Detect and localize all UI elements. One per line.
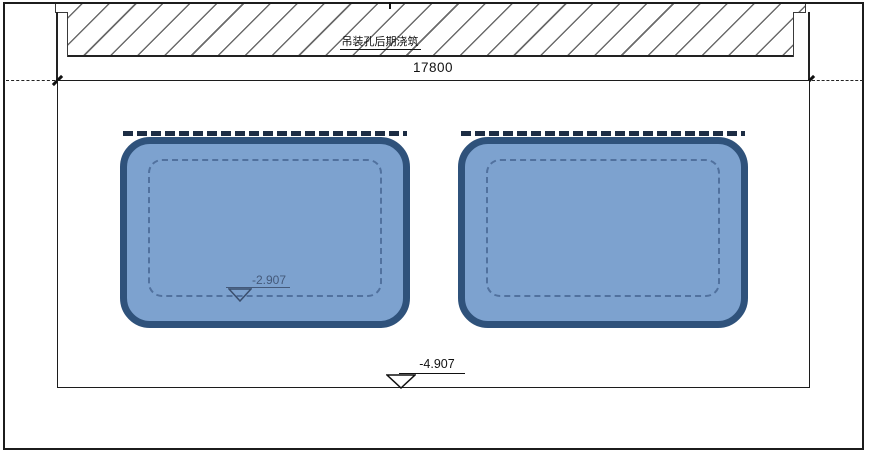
pool-right-inner-dashed-outline	[486, 159, 720, 297]
pool-left	[120, 137, 410, 328]
elevation-triangle-icon	[228, 288, 252, 302]
elevation-value-base: -4.907	[409, 357, 465, 371]
elevation-triangle-icon	[386, 374, 416, 389]
dimension-label: 17800	[373, 60, 493, 75]
pool-right	[458, 137, 748, 328]
elevation-value-pit: -2.907	[243, 273, 295, 287]
dimension-dashed-extension-right	[812, 80, 863, 81]
construction-note-text: 吊装孔后期浇筑	[340, 36, 421, 50]
dimension-dashed-extension-left	[6, 80, 55, 81]
slab-step-notch-right	[793, 12, 806, 57]
hatched-slab-band	[55, 4, 806, 57]
extension-line-right	[808, 12, 810, 82]
construction-note: 吊装孔后期浇筑	[295, 36, 465, 49]
extension-line-left	[56, 12, 58, 82]
pool-left-top-dashed-edge	[123, 131, 407, 136]
foundation-section-drawing: 吊装孔后期浇筑 17800 -2.907 -4.907	[0, 0, 872, 457]
pool-right-top-dashed-edge	[461, 131, 745, 136]
centerline-tick	[389, 2, 391, 9]
